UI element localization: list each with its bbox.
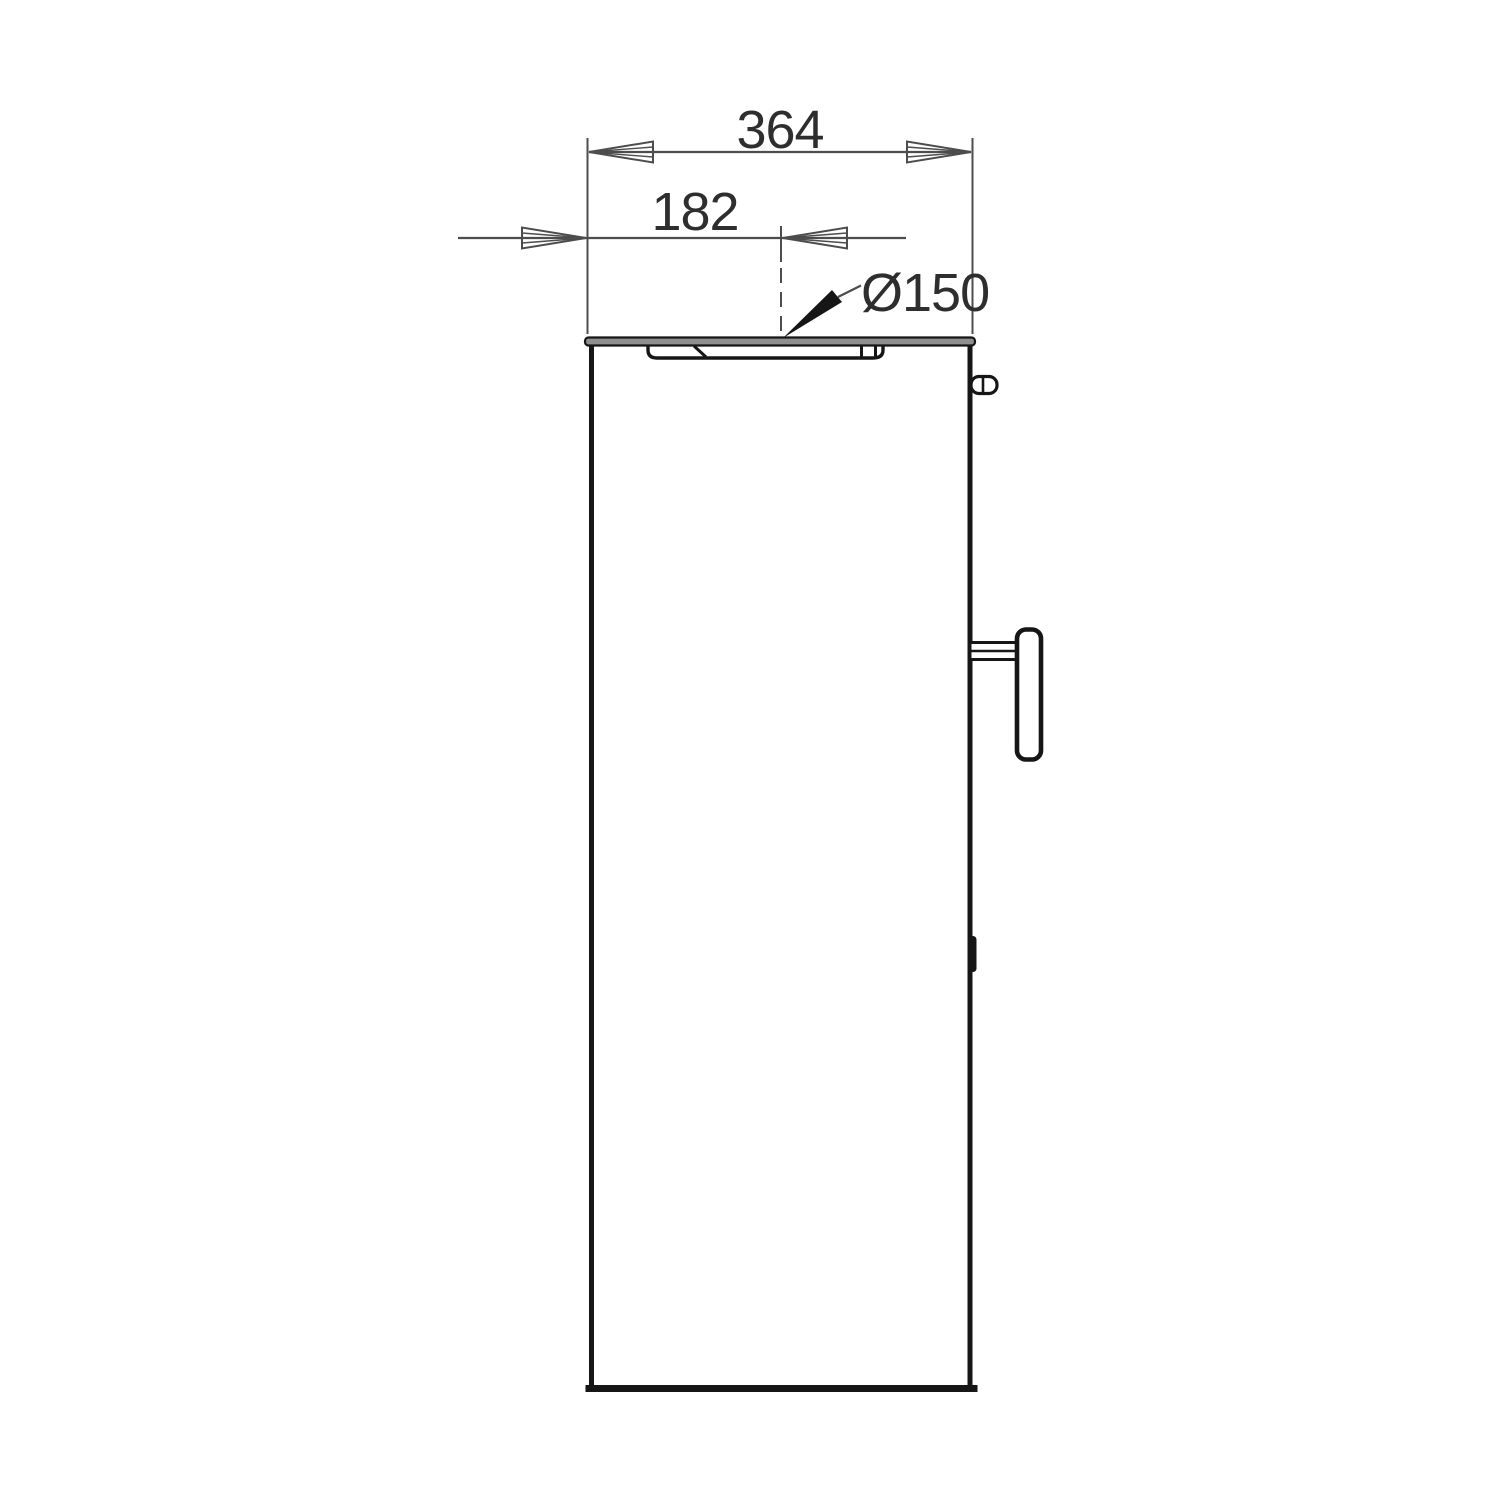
leader-arrowhead	[783, 290, 842, 338]
top-plate	[585, 338, 975, 346]
door-latch	[969, 936, 977, 972]
dim-label-center-offset: 182	[651, 182, 738, 242]
stove-body	[585, 338, 1041, 1389]
dim-label-total-width: 364	[736, 100, 823, 160]
dim-label-flue-diameter: Ø150	[861, 263, 989, 323]
technical-drawing-page: 364 182 Ø150	[0, 0, 1500, 1500]
collar-crease	[694, 346, 706, 357]
dimension-center-offset: 182	[458, 182, 906, 336]
stove-side-view-drawing: 364 182 Ø150	[0, 0, 1500, 1500]
leader-line	[838, 286, 861, 298]
door-handle-grip	[1017, 630, 1041, 760]
flue-collar	[648, 346, 883, 358]
dimension-flue-diameter: Ø150	[783, 263, 989, 338]
